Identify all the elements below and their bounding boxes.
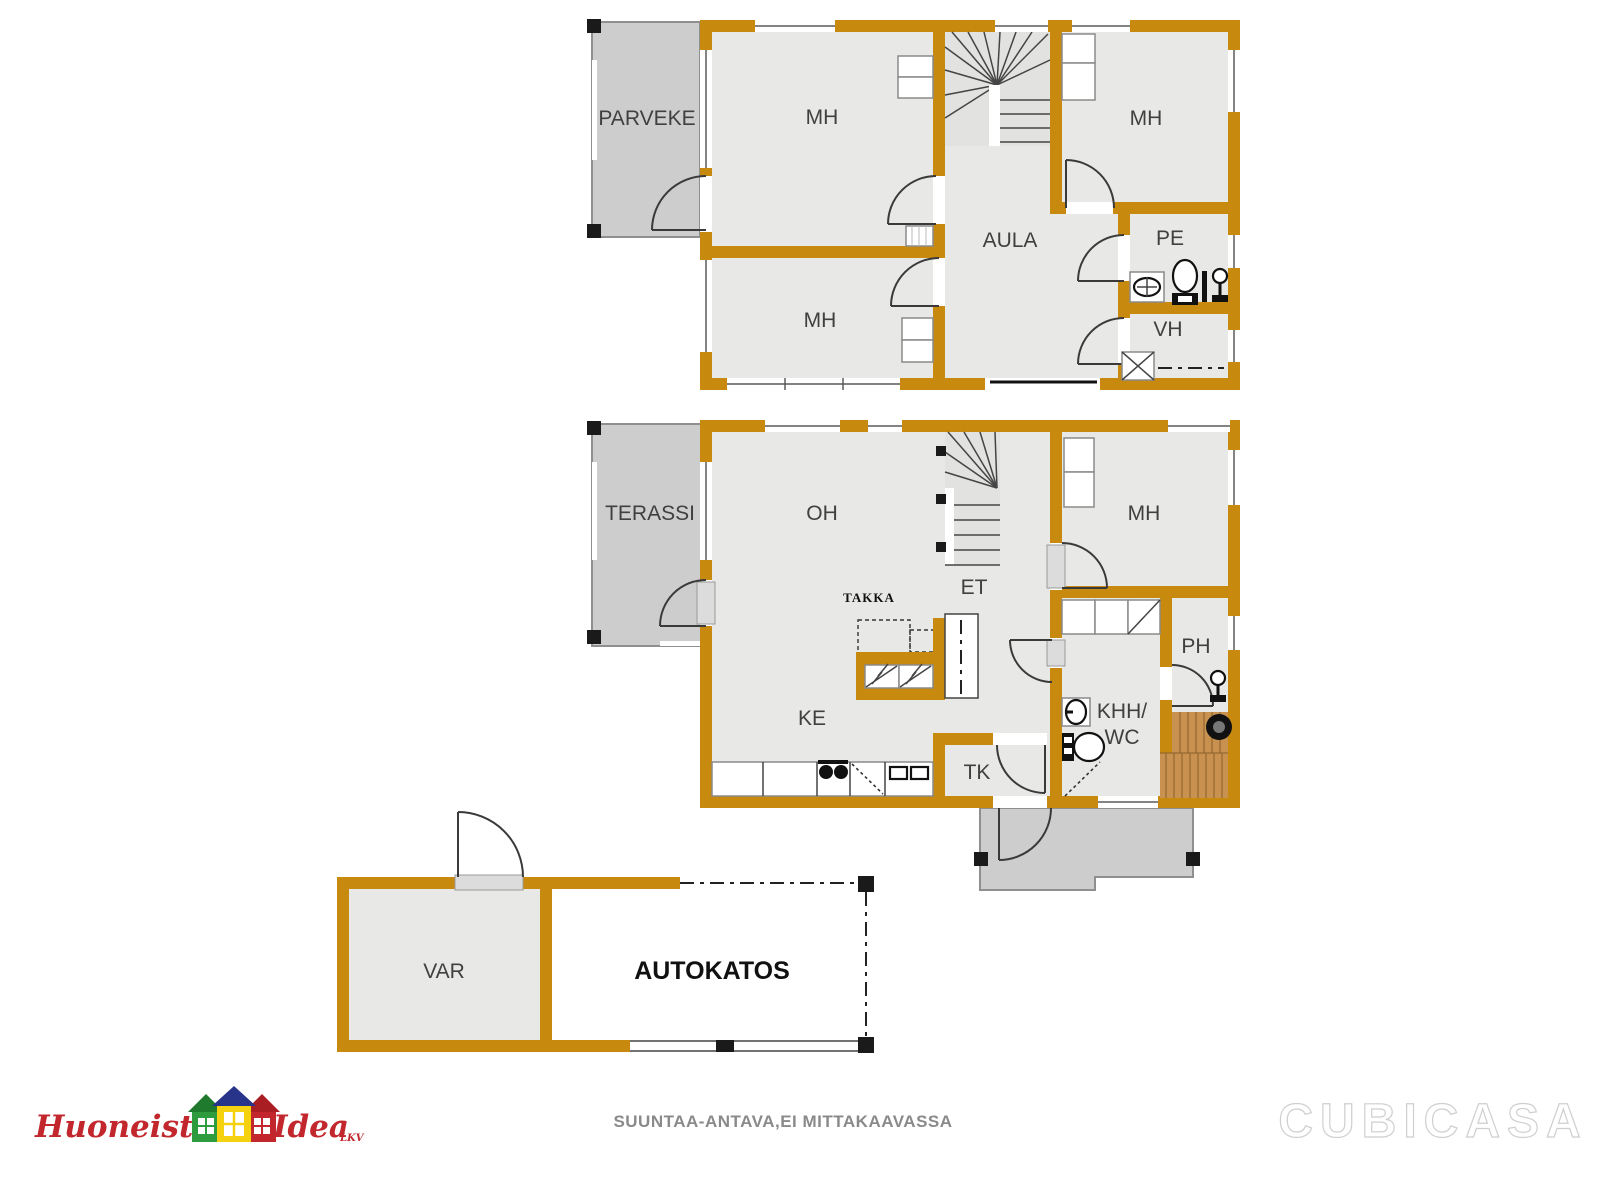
- floorplan-page: PARVEKE MH MH AULA PE VH MH: [0, 0, 1600, 1200]
- room-label-et: ET: [961, 576, 988, 599]
- porch-post: [1186, 852, 1200, 866]
- room-label-oh: OH: [806, 502, 838, 525]
- room-label-tk: TK: [964, 761, 991, 784]
- fireplace-label: TAKKA: [843, 590, 895, 605]
- window: [995, 20, 1048, 32]
- window: [700, 260, 712, 352]
- terrace-post: [587, 630, 601, 644]
- upper-floor: PARVEKE MH MH AULA PE VH MH: [587, 19, 1240, 390]
- floorplan-drawing: PARVEKE MH MH AULA PE VH MH: [0, 0, 1600, 1200]
- balcony-rail-gap: [592, 60, 597, 160]
- outbuilding: VAR AUTOKATOS: [337, 812, 874, 1053]
- window: [1228, 50, 1240, 112]
- balcony-post: [587, 19, 601, 33]
- window: [985, 378, 1100, 390]
- disclaimer-text: SUUNTAA-ANTAVA,EI MITTAKAAVASSA: [613, 1112, 952, 1131]
- logo-suffix-lkv: LKV: [339, 1133, 365, 1144]
- footer: Huoneisto Idea LKV SUUNTAA-ANT: [34, 1086, 1588, 1148]
- window: [1228, 330, 1240, 362]
- room-label-mh: MH: [804, 309, 837, 332]
- dresser: [906, 226, 933, 246]
- room-label-terassi: TERASSI: [605, 502, 695, 525]
- kitchen-counter: [712, 760, 933, 796]
- logo-house-icon: [188, 1086, 280, 1142]
- sink-icon: [1062, 698, 1090, 726]
- toilet-icon: [1172, 260, 1198, 305]
- window: [755, 20, 835, 32]
- window: [727, 378, 900, 390]
- room-label-mh: MH: [1128, 502, 1161, 525]
- terrace-terassi: [587, 421, 712, 646]
- logo-word-huoneisto: Huoneisto: [34, 1109, 214, 1145]
- main-staircase: [936, 432, 1000, 565]
- room-label-pe: PE: [1156, 227, 1184, 250]
- window: [1168, 420, 1230, 432]
- window: [700, 50, 712, 168]
- room-label-vh: VH: [1153, 318, 1182, 341]
- window: [868, 420, 902, 432]
- balcony-post: [587, 224, 601, 238]
- cubicasa-logo: CUBICASA: [1278, 1095, 1587, 1148]
- porch-post: [974, 852, 988, 866]
- room-label-parveke: PARVEKE: [598, 107, 695, 130]
- window: [1098, 796, 1158, 808]
- main-floor: TERASSI OH ET MH TAKKA KE TK KHH/ WC PH: [587, 420, 1240, 890]
- divider-bar: [1202, 271, 1207, 302]
- logo-word-idea: Idea: [272, 1109, 349, 1145]
- terrace-rail-gap: [592, 462, 597, 560]
- toilet-icon: [1062, 733, 1104, 761]
- appliance-cabinet: [1128, 600, 1160, 634]
- room-label-aula: AULA: [983, 229, 1038, 252]
- window: [1228, 235, 1240, 268]
- room-label-mh: MH: [806, 106, 839, 129]
- fireplace-glass: [865, 664, 933, 688]
- room-label-wc: WC: [1105, 726, 1140, 749]
- sink-icon: [1130, 272, 1164, 302]
- chimney: [945, 614, 978, 698]
- window: [1228, 450, 1240, 505]
- room-label-khh: KHH/: [1097, 700, 1147, 723]
- terrace-post: [587, 421, 601, 435]
- room-label-ke: KE: [798, 707, 826, 730]
- window: [1228, 616, 1240, 650]
- room-label-var: VAR: [423, 960, 465, 983]
- huoneisto-idea-logo: Huoneisto Idea LKV: [34, 1086, 365, 1145]
- window: [765, 420, 840, 432]
- room-label-ph: PH: [1181, 635, 1210, 658]
- entrance-porch: [974, 808, 1200, 890]
- upper-staircase: [945, 32, 1050, 146]
- storage-door: [455, 812, 523, 890]
- sauna-stove-icon: [1206, 714, 1232, 740]
- room-label-autokatos: AUTOKATOS: [634, 957, 790, 985]
- room-label-mh: MH: [1130, 107, 1163, 130]
- window: [1072, 20, 1130, 32]
- window: [700, 462, 712, 560]
